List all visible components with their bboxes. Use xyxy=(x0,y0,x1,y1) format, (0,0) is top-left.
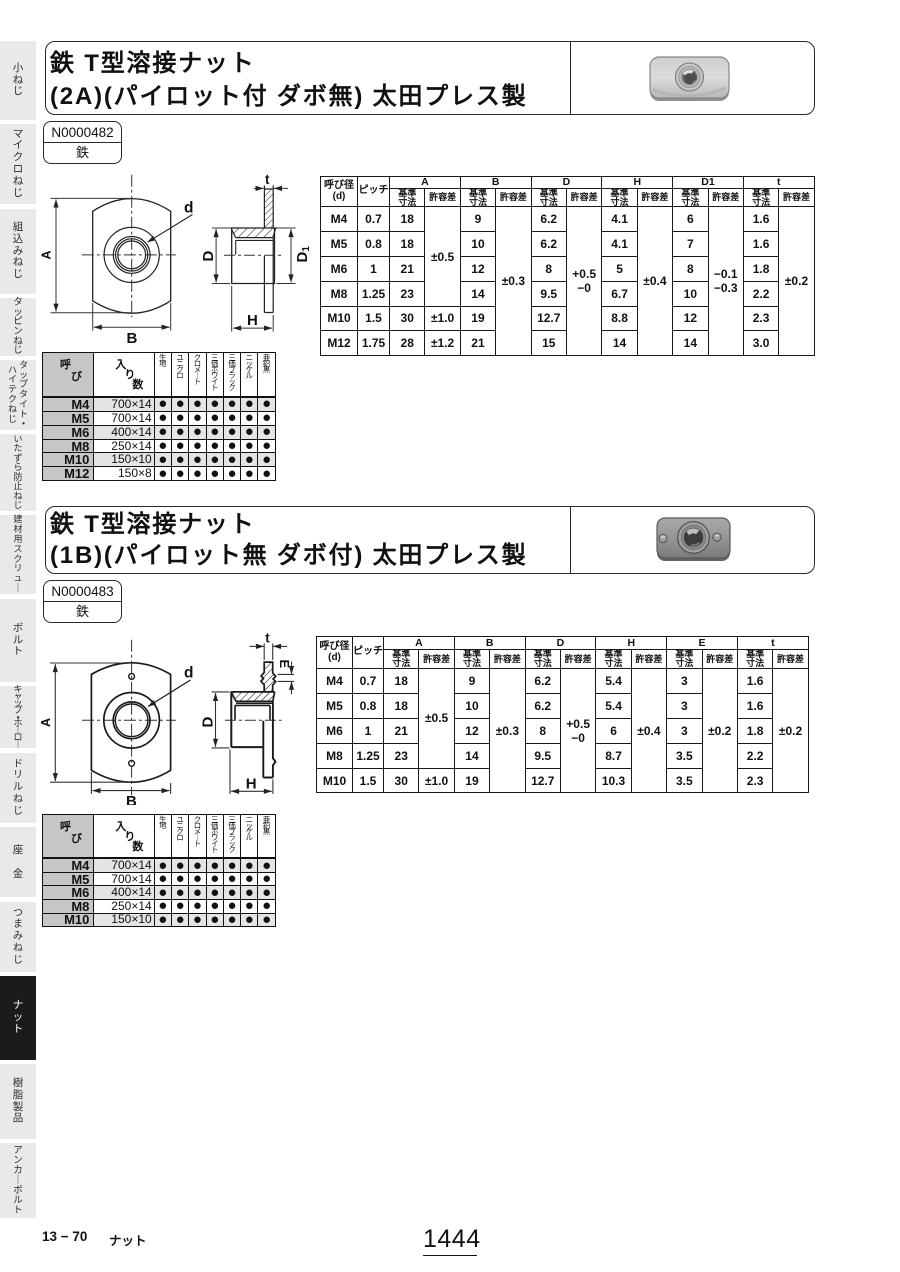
svg-text:B: B xyxy=(127,330,138,347)
svg-text:t: t xyxy=(265,631,270,646)
svg-text:A: A xyxy=(40,718,53,727)
svg-text:d: d xyxy=(184,200,193,217)
svg-text:H: H xyxy=(247,312,258,329)
svg-text:D: D xyxy=(200,251,217,262)
svg-text:D1: D1 xyxy=(294,246,312,263)
svg-text:A: A xyxy=(40,250,54,259)
svg-text:D: D xyxy=(200,717,217,728)
svg-text:B: B xyxy=(126,793,137,805)
svg-text:t: t xyxy=(265,172,270,187)
svg-text:E: E xyxy=(277,660,292,669)
svg-text:H: H xyxy=(246,776,257,793)
svg-text:d: d xyxy=(184,665,193,682)
